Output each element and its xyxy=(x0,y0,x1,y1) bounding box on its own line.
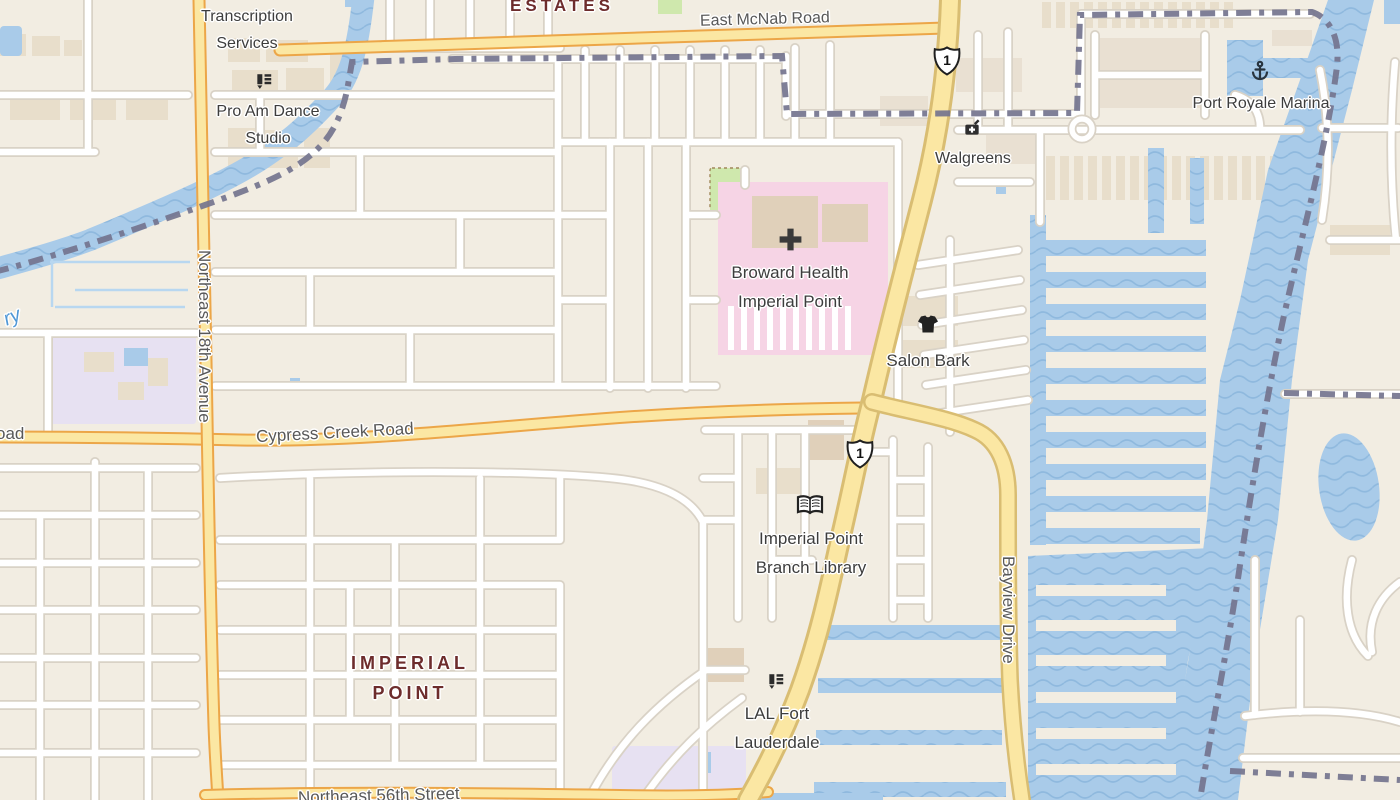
poi-label-walgreens: Walgreens xyxy=(873,145,1073,172)
commercial-icon[interactable] xyxy=(766,672,786,697)
us-route-1-shield-south: 1 xyxy=(845,439,875,469)
school-area xyxy=(48,336,196,424)
road-label-bayview-drive: Bayview Drive xyxy=(998,556,1018,664)
map-canvas[interactable]: ESTATES East McNab Road Transcription Se… xyxy=(0,0,1400,800)
road-label-northeast-18th-avenue: Northeast 18th Avenue xyxy=(194,250,214,423)
commercial-icon[interactable] xyxy=(254,72,274,97)
hospital-cross-icon[interactable] xyxy=(777,226,804,258)
anchor-icon[interactable] xyxy=(1249,60,1271,87)
poi-label-pro-am-dance-studio: Pro Am Dance Studio xyxy=(168,98,368,152)
book-icon[interactable] xyxy=(795,494,825,521)
school-pool xyxy=(124,348,148,366)
us-route-1-shield-north: 1 xyxy=(932,46,962,76)
pharmacy-icon[interactable] xyxy=(962,118,982,143)
place-label-imperial-point: IMPERIAL POINT xyxy=(310,648,510,708)
poi-label-transcription-services: Transcription Services xyxy=(147,3,347,57)
poi-label-lal-fort-lauderdale: LAL Fort Lauderdale xyxy=(677,699,877,757)
place-label-estates: ESTATES xyxy=(492,0,632,21)
poi-label-salon-bark: Salon Bark xyxy=(828,346,1028,375)
road-label-east-mcnab: East McNab Road xyxy=(700,9,830,30)
poi-label-broward-health: Broward Health Imperial Point xyxy=(665,258,915,316)
tshirt-icon[interactable] xyxy=(917,315,939,339)
poi-label-port-royale-marina: Port Royale Marina xyxy=(1131,90,1391,117)
poi-label-imperial-point-library: Imperial Point Branch Library xyxy=(686,524,936,582)
park-strip-north xyxy=(658,0,682,14)
road-label-partial-west: oad xyxy=(0,424,24,444)
